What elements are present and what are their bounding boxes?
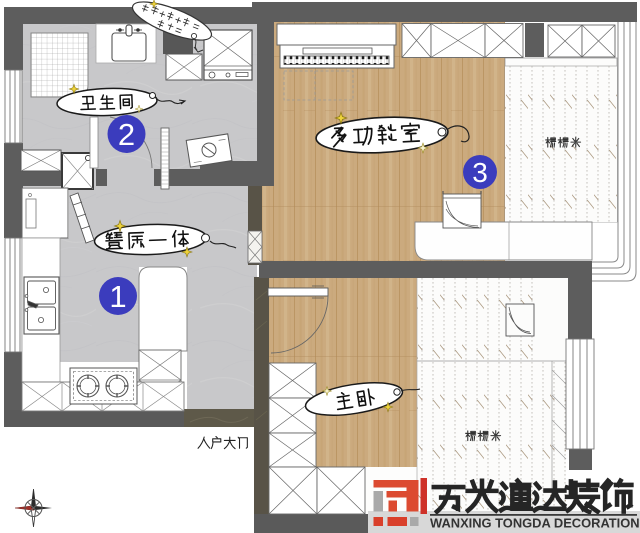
svg-text:WANXING TONGDA DECORATION: WANXING TONGDA DECORATION [430,516,640,531]
svg-text:3: 3 [472,157,488,188]
svg-text:2: 2 [118,117,135,152]
svg-text:1: 1 [109,279,126,314]
